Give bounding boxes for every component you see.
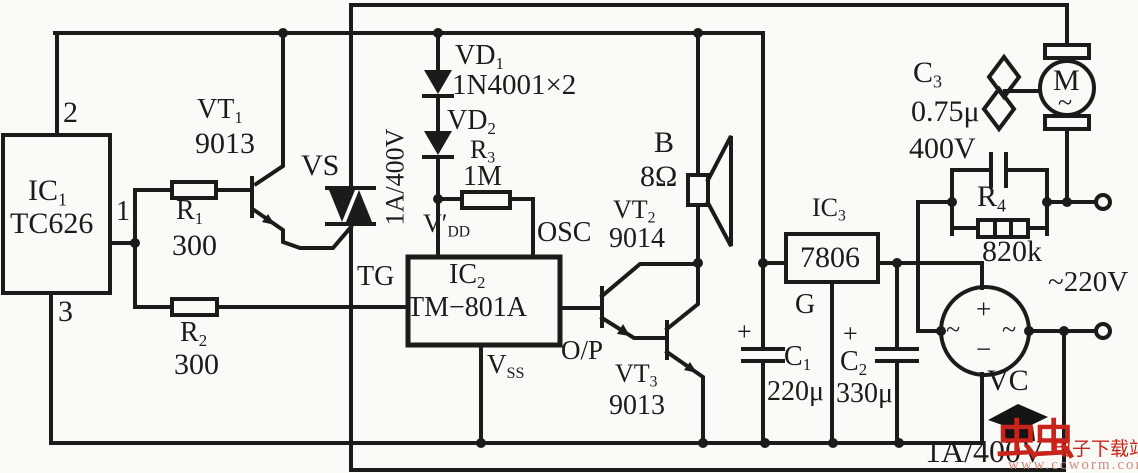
c2-label: C2 <box>840 348 867 379</box>
vt1-label: VT1 <box>197 96 243 127</box>
ic2-tg-pin-label: TG <box>357 263 394 291</box>
mains-voltage-label: ~220V <box>1048 268 1128 297</box>
r2-label: R2 <box>180 319 207 350</box>
c1-label: C1 <box>784 343 811 374</box>
c1-polarity-label: + <box>737 319 752 345</box>
ic1-pin1-label: 1 <box>116 198 130 226</box>
motor-brush-top <box>1045 45 1089 58</box>
vt1-part-label: 9013 <box>195 129 255 159</box>
r4-value-label: 820k <box>982 237 1042 267</box>
schematic-canvas: 2 IC1 TC626 1 3 R1 300 R2 300 VT1 9013 V… <box>0 0 1138 473</box>
vs-label: VS <box>301 151 339 181</box>
c3-voltage-label: 400V <box>909 134 976 164</box>
wire-supply-rail <box>55 33 763 135</box>
vt2-label: VT2 <box>613 197 655 226</box>
vd1-symbol <box>424 70 452 94</box>
r4-label: R4 <box>977 182 1006 214</box>
ic3-part-label: 7806 <box>800 243 860 273</box>
ic2-op-pin-label: O/P <box>561 337 603 364</box>
r3-symbol <box>462 192 510 208</box>
vd2-label: VD2 <box>447 107 496 138</box>
r2-symbol <box>172 299 217 315</box>
ic1-pin3-label: 3 <box>58 297 73 327</box>
ic3-label: IC3 <box>812 195 846 224</box>
vt2-part-label: 9014 <box>609 225 665 253</box>
c3-label: C3 <box>913 58 942 90</box>
speaker-value-label: 8Ω <box>640 162 677 192</box>
c1-symbol <box>743 349 783 361</box>
c2-value-label: 330μ <box>836 380 893 408</box>
bridge-ac-left-label: ~ <box>946 317 960 343</box>
bridge-minus-label: − <box>976 336 991 363</box>
bridge-ac-right-label: ~ <box>1002 317 1016 343</box>
watermark-url-text: www.ccworm.com <box>1008 458 1138 473</box>
vt3-part-label: 9013 <box>609 392 665 420</box>
vs-rating-label: 1A/400V <box>382 129 408 226</box>
vt2-symbol <box>602 264 698 338</box>
speaker-label: B <box>654 128 674 158</box>
bridge-plus-label: + <box>976 296 991 323</box>
vt3-symbol <box>667 263 703 443</box>
terminal-live <box>1096 195 1110 209</box>
c3-value-label: 0.75μ <box>911 97 980 127</box>
r1-value-label: 300 <box>172 231 217 261</box>
vt3-label: VT3 <box>615 361 657 390</box>
junction-dots <box>130 28 1072 448</box>
r3-value-label: 1M <box>463 163 502 191</box>
c1-value-label: 220μ <box>767 378 824 406</box>
ic1-pin2-label: 2 <box>63 98 78 128</box>
ic2-part-label: TM−801A <box>407 294 527 322</box>
bridge-label: VC <box>987 366 1029 396</box>
speaker-cone <box>708 136 731 246</box>
vd-part-label: 1N4001×2 <box>452 71 576 100</box>
r1-label: R1 <box>176 197 203 228</box>
ic2-vss-pin-label: VSS <box>487 351 525 381</box>
ic3-gnd-pin-label: G <box>795 291 815 319</box>
c2-polarity-label: + <box>843 321 858 347</box>
ic2-vdd-pin-label: V′DD <box>423 211 470 240</box>
ic2-osc-pin-label: OSC <box>537 219 591 247</box>
motor-ac-symbol: ~ <box>1058 90 1072 116</box>
terminal-neutral <box>1096 324 1110 338</box>
triac-symbol <box>327 188 374 224</box>
speaker-symbol <box>688 175 708 205</box>
ic1-part-label: TC626 <box>10 209 93 239</box>
ic1-label: IC1 <box>28 176 67 208</box>
fan-icon <box>984 57 1040 129</box>
ic2-label: IC2 <box>449 261 485 292</box>
r2-value-label: 300 <box>174 350 219 380</box>
